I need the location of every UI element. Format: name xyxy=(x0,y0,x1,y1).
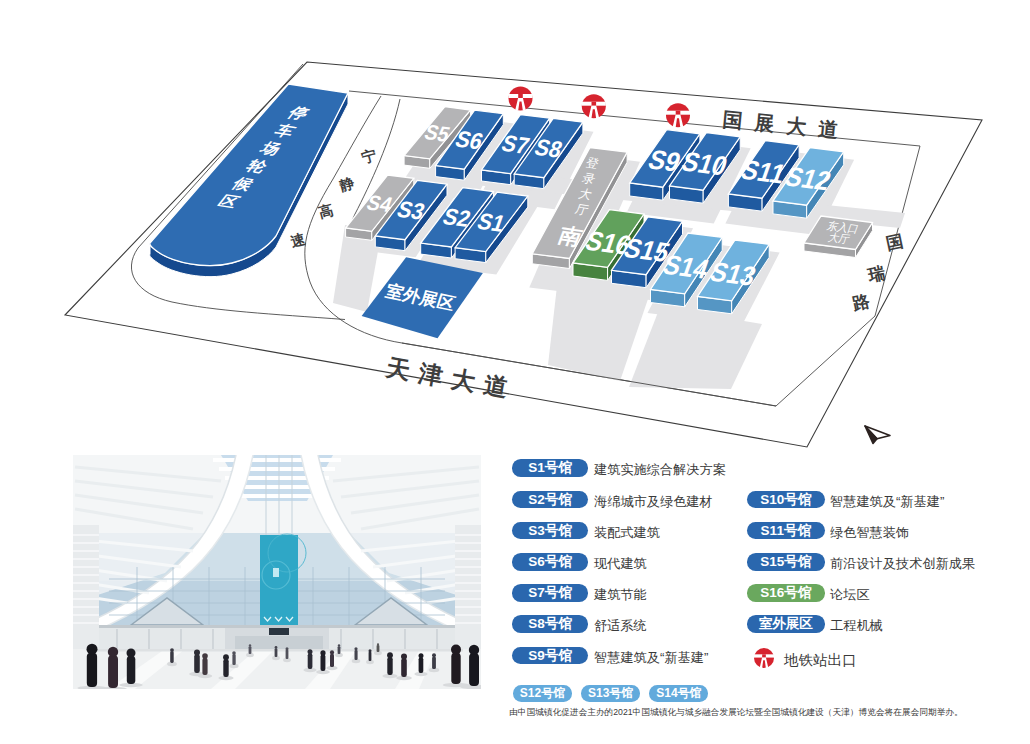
svg-text:大厅: 大厅 xyxy=(827,231,852,245)
